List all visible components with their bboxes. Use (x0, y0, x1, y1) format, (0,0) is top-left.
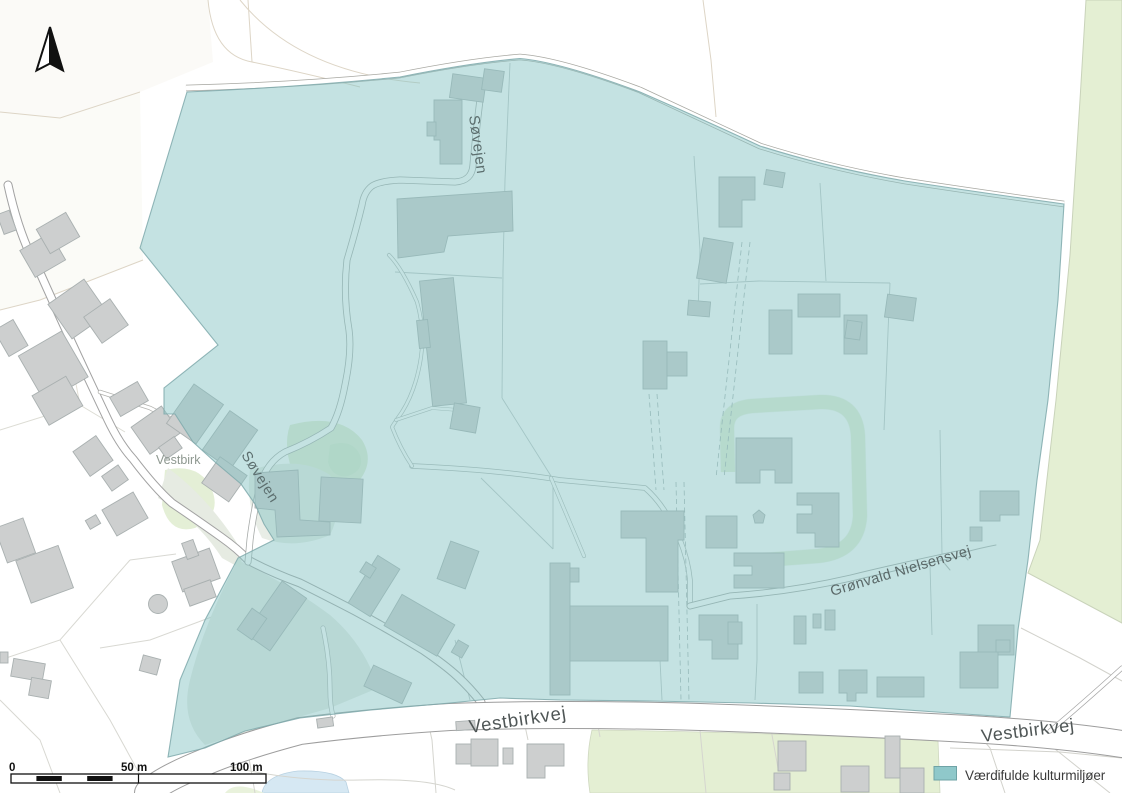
svg-text:Vestbirk: Vestbirk (156, 453, 201, 467)
svg-text:100 m: 100 m (230, 762, 263, 774)
svg-text:Værdifulde kulturmiljøer: Værdifulde kulturmiljøer (965, 768, 1106, 783)
svg-text:50 m: 50 m (121, 762, 147, 774)
svg-text:0: 0 (9, 762, 15, 774)
